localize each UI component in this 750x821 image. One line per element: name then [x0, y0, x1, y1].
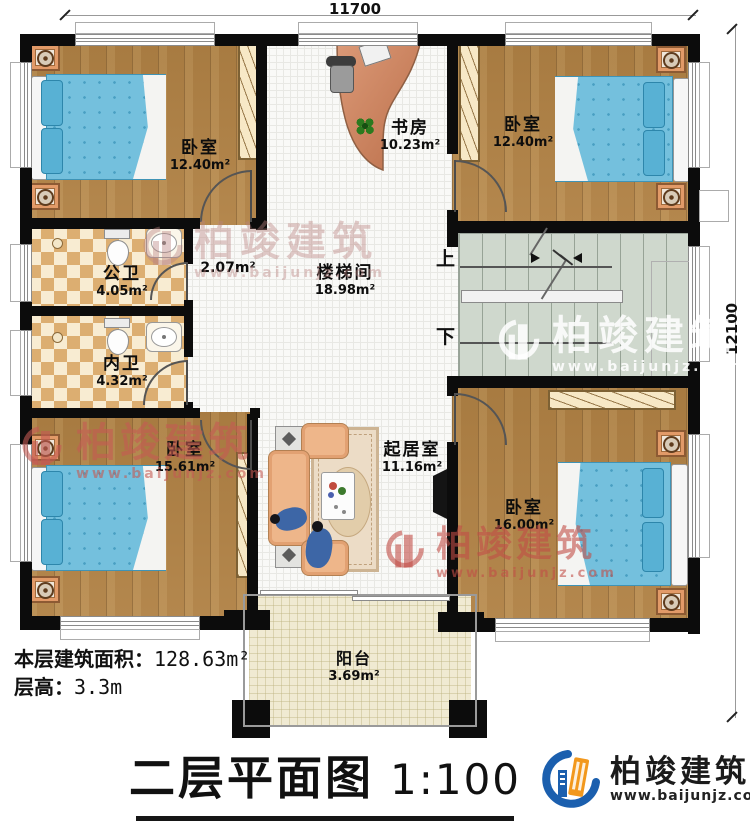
window-sill	[699, 246, 710, 362]
floor-area-label: 本层建筑面积：	[14, 647, 154, 671]
sliding-door	[260, 590, 358, 595]
interior-wall	[20, 408, 200, 418]
window-sill	[699, 434, 710, 558]
floor-drain	[52, 238, 63, 249]
pillow	[41, 128, 63, 174]
window-sill	[10, 444, 21, 562]
floor-plan: 上 下 卧室 12.40m² 书房 10.23m² 卧室 12.40m² 公卫 …	[0, 0, 750, 821]
window-sill	[495, 631, 650, 642]
interior-wall	[250, 218, 267, 229]
brand-website: www.baijunjz.com	[610, 788, 750, 804]
door-leaf	[186, 360, 188, 405]
window	[20, 244, 32, 302]
flower-decoration	[338, 487, 346, 495]
stair-leader-line	[460, 266, 612, 268]
room-label-public-bath: 公卫 4.05m²	[62, 264, 182, 299]
room-label-vestibule: 2.07m²	[168, 260, 288, 277]
person-head	[270, 514, 280, 524]
pillow	[41, 471, 63, 517]
drawing-scale: 1:100	[390, 755, 521, 804]
room-label-bedroom-topright: 卧室 12.40m²	[463, 115, 583, 150]
sink	[146, 228, 182, 258]
window	[495, 618, 650, 632]
stair-landing-line	[651, 261, 689, 262]
stairs-down-label: 下	[436, 322, 455, 349]
pillow	[642, 468, 664, 518]
interior-wall	[20, 218, 200, 229]
room-label-living: 起居室 11.16m²	[352, 440, 472, 475]
nightstand	[656, 430, 686, 457]
drawing-title: 二层平面图 1:100	[136, 742, 514, 821]
bed-headboard	[671, 464, 688, 586]
pillow	[41, 519, 63, 565]
end-table	[275, 426, 303, 451]
door-leaf	[454, 160, 456, 212]
window-sill	[10, 330, 21, 396]
window	[60, 616, 200, 630]
decoration-dot	[334, 505, 338, 509]
floor-height-value: 3.3m	[74, 675, 122, 699]
room-label-bedroom-bottomright: 卧室 16.00m²	[464, 498, 584, 533]
window-sill	[505, 22, 652, 34]
door-leaf	[454, 393, 456, 445]
floor-area-summary: 本层建筑面积：128.63m²	[14, 643, 250, 672]
drawing-title-text: 二层平面图	[129, 742, 374, 808]
stair-direction-arrow	[531, 253, 540, 263]
floor-area-value: 128.63m²	[154, 647, 250, 671]
sliding-door	[352, 596, 450, 601]
toilet-tank	[104, 318, 130, 328]
flue-box	[699, 190, 729, 222]
interior-wall	[256, 40, 267, 230]
room-label-private-bath: 内卫 4.32m²	[62, 354, 182, 389]
floor-drain	[52, 332, 63, 343]
nightstand	[656, 588, 686, 615]
room-label-bedroom-topleft: 卧室 12.40m²	[140, 138, 260, 173]
window	[20, 444, 32, 562]
door-leaf	[250, 420, 252, 470]
stairs-up-label: 上	[436, 244, 455, 271]
interior-wall	[20, 306, 192, 316]
dimension-line	[735, 26, 736, 718]
coffee-table	[321, 472, 355, 520]
pillow	[642, 522, 664, 572]
pillow	[643, 82, 665, 128]
stair-leader-line	[460, 342, 612, 344]
window	[20, 62, 32, 168]
person-head	[312, 521, 323, 532]
window	[20, 330, 32, 396]
brand-name: 柏竣建筑	[610, 756, 750, 789]
room-label-study: 书房 10.23m²	[350, 118, 470, 153]
nightstand	[30, 44, 60, 71]
nightstand	[30, 576, 60, 603]
brand-logo: 柏竣建筑 www.baijunjz.com	[538, 748, 750, 812]
pillow	[41, 80, 63, 126]
window	[298, 34, 418, 46]
window	[75, 34, 215, 46]
window-sill	[10, 62, 21, 168]
interior-wall	[447, 221, 700, 233]
tv	[433, 469, 447, 519]
sink	[146, 322, 182, 352]
floor-height-summary: 层高：3.3m	[14, 671, 122, 700]
room-label-bedroom-bottomleft: 卧室 15.61m²	[125, 440, 245, 475]
window-sill	[75, 22, 215, 34]
toilet-tank	[104, 229, 130, 239]
nightstand	[656, 46, 686, 73]
window-sill	[10, 244, 21, 302]
interior-wall	[447, 376, 700, 388]
nightstand	[30, 434, 60, 461]
nightstand	[30, 183, 60, 210]
window	[505, 34, 652, 46]
dimension-width: 11700	[290, 0, 420, 18]
room-label-balcony: 阳台 3.69m²	[294, 650, 414, 684]
door-leaf	[250, 170, 252, 222]
stair-direction-arrow	[573, 253, 582, 263]
interior-wall	[184, 229, 193, 264]
window-sill	[298, 22, 418, 34]
brand-logo-icon	[538, 748, 602, 812]
dimension-depth: 12100	[723, 299, 741, 359]
stair-landing-line	[651, 261, 652, 376]
decoration-dot	[342, 510, 346, 514]
pillow	[643, 130, 665, 176]
flower-decoration	[329, 482, 337, 490]
bed	[31, 463, 166, 573]
window-sill	[699, 62, 710, 168]
floor-height-label: 层高：	[14, 675, 74, 699]
window-sill	[60, 629, 200, 640]
room-label-stairhall: 楼梯间 18.98m²	[285, 263, 405, 298]
flower-decoration	[328, 492, 334, 498]
nightstand	[656, 183, 686, 210]
sofa-long	[268, 450, 310, 546]
desk-chair-seat	[330, 65, 354, 93]
wardrobe	[548, 390, 676, 410]
